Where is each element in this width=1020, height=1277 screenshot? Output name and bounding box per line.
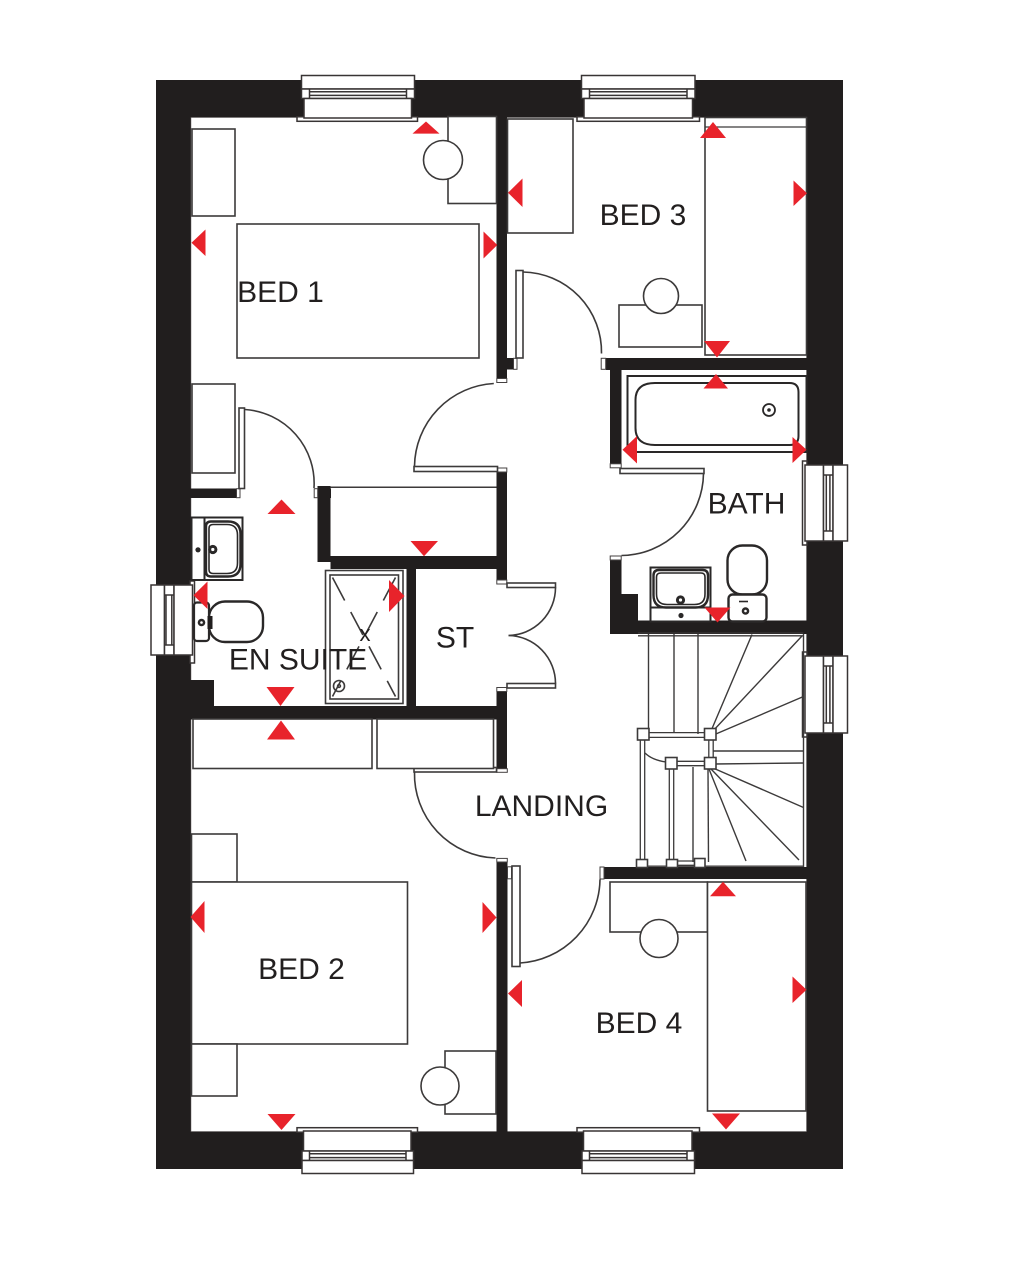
svg-text:BED 4: BED 4 (596, 1007, 683, 1040)
svg-text:BED 2: BED 2 (258, 953, 345, 986)
svg-text:BED 1: BED 1 (237, 276, 324, 309)
svg-text:EN SUITE: EN SUITE (229, 644, 367, 677)
svg-text:ST: ST (436, 622, 474, 655)
svg-text:LANDING: LANDING (475, 790, 608, 823)
svg-text:BED 3: BED 3 (600, 199, 687, 232)
svg-text:x: x (360, 621, 371, 646)
svg-text:BATH: BATH (708, 488, 786, 521)
